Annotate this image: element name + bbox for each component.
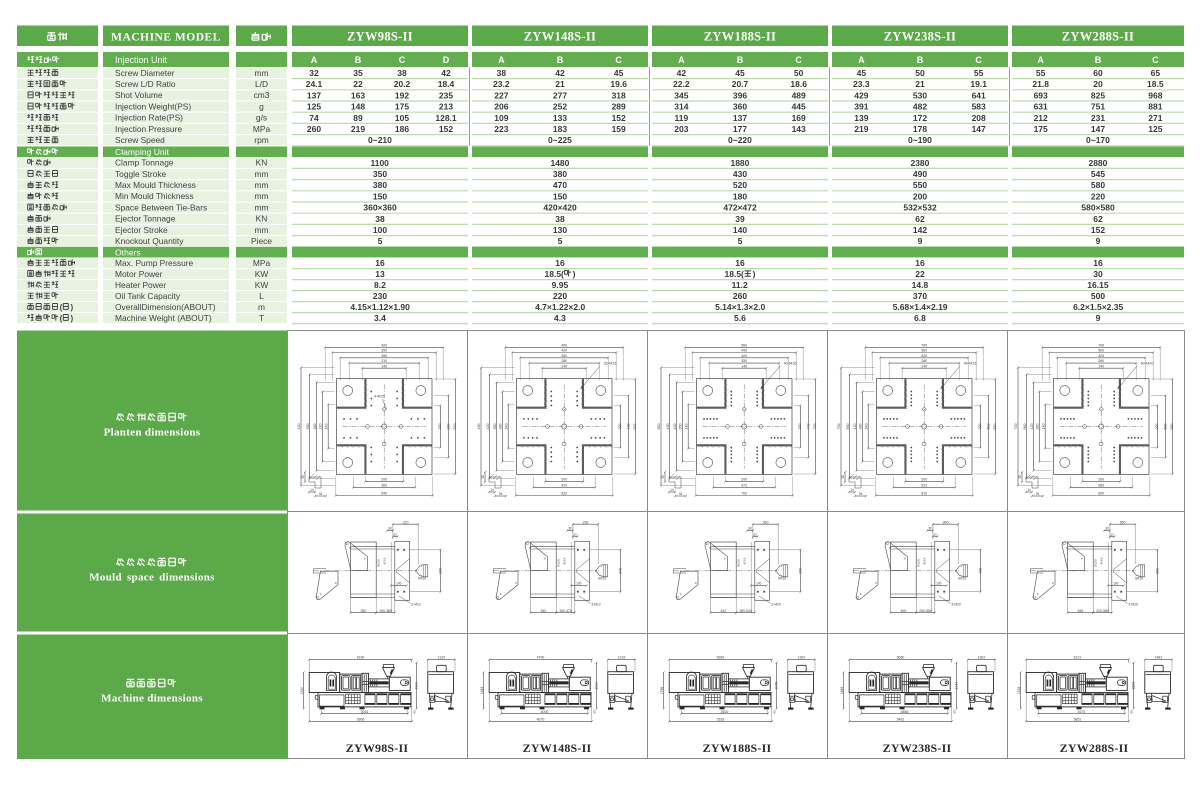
svg-text:490: 490 (666, 424, 670, 430)
svg-text:L: L (259, 291, 264, 301)
svg-text:210: 210 (319, 424, 323, 430)
svg-text:Clamp Tonnage: Clamp Tonnage (115, 158, 174, 168)
svg-text:5179: 5179 (1078, 710, 1086, 714)
svg-text:22: 22 (915, 269, 925, 279)
svg-text:90: 90 (1129, 710, 1133, 714)
svg-text:90: 90 (952, 710, 956, 714)
svg-text:ZYW98S-II: ZYW98S-II (347, 30, 413, 44)
svg-text:B: B (557, 55, 564, 65)
svg-text:18.5(: 18.5( (545, 269, 565, 279)
svg-text:A: A (311, 55, 318, 65)
svg-text:45: 45 (735, 68, 745, 78)
svg-text:16: 16 (375, 258, 385, 268)
svg-text:4000: 4000 (541, 710, 549, 714)
svg-text:0~225: 0~225 (548, 135, 572, 145)
svg-text:C: C (1152, 55, 1159, 65)
svg-text:Ejector Tonnage: Ejector Tonnage (115, 214, 176, 224)
svg-text:420: 420 (853, 424, 857, 430)
svg-text:33: 33 (499, 492, 503, 496)
svg-text:420: 420 (720, 609, 726, 613)
svg-text:420: 420 (673, 424, 677, 430)
svg-text:420: 420 (1030, 424, 1034, 430)
svg-text:490: 490 (913, 169, 927, 179)
svg-text:700: 700 (741, 492, 747, 496)
svg-text:14: 14 (490, 488, 494, 492)
svg-text:119: 119 (674, 113, 688, 123)
svg-text:260: 260 (307, 124, 321, 134)
svg-text:6.8: 6.8 (914, 313, 926, 323)
svg-text:KW: KW (255, 280, 269, 290)
svg-text:(: ( (60, 314, 63, 323)
svg-text:140: 140 (324, 424, 328, 430)
svg-text:18.4: 18.4 (438, 79, 455, 89)
svg-text:45: 45 (857, 68, 867, 78)
svg-text:140: 140 (684, 424, 688, 430)
svg-text:KN: KN (256, 214, 268, 224)
svg-text:200: 200 (1098, 478, 1104, 482)
svg-text:5481: 5481 (897, 717, 905, 721)
svg-text:445: 445 (792, 102, 806, 112)
svg-text:631: 631 (1034, 102, 1048, 112)
svg-text:1480: 1480 (550, 158, 569, 168)
svg-text:30: 30 (1105, 527, 1109, 531)
svg-text:Injection Pressure: Injection Pressure (115, 124, 182, 134)
svg-text:140: 140 (741, 364, 747, 368)
svg-text:Machine Weight (ABOUT): Machine Weight (ABOUT) (115, 313, 212, 323)
svg-text:700: 700 (921, 344, 927, 348)
svg-text:700: 700 (1014, 424, 1018, 430)
svg-text:125: 125 (1148, 124, 1162, 134)
svg-text:178: 178 (913, 124, 927, 134)
svg-text:200: 200 (978, 424, 982, 430)
svg-text:280: 280 (561, 359, 567, 363)
svg-text:4190: 4190 (357, 656, 365, 660)
svg-text:380: 380 (373, 180, 387, 190)
svg-text:rpm: rpm (254, 135, 268, 145)
svg-text:4856: 4856 (901, 710, 909, 714)
svg-text:490: 490 (561, 344, 567, 348)
svg-text:18.5: 18.5 (1147, 79, 1164, 89)
svg-text:A: A (498, 55, 505, 65)
svg-text:Injection Unit: Injection Unit (115, 55, 168, 65)
svg-text:175: 175 (1034, 124, 1048, 134)
svg-text:5: 5 (738, 236, 743, 246)
svg-text:490: 490 (900, 609, 906, 613)
svg-text:420×420: 420×420 (543, 203, 577, 213)
svg-text:89: 89 (353, 113, 363, 123)
svg-text:140: 140 (504, 424, 508, 430)
svg-text:20: 20 (1093, 79, 1103, 89)
svg-text:580×580: 580×580 (1081, 203, 1115, 213)
svg-text:1900: 1900 (414, 682, 418, 690)
svg-text:Min Mould Thickness: Min Mould Thickness (115, 191, 194, 201)
svg-text:21.8: 21.8 (1032, 79, 1049, 89)
svg-text:540: 540 (453, 424, 457, 430)
svg-text:g: g (259, 101, 264, 111)
svg-text:1120: 1120 (438, 656, 446, 660)
svg-text:mm: mm (255, 191, 269, 201)
svg-text:2880: 2880 (1088, 158, 1107, 168)
svg-text:8.2: 8.2 (374, 280, 386, 290)
svg-text:580: 580 (1091, 180, 1105, 190)
svg-text:OverallDimension(ABOUT): OverallDimension(ABOUT) (115, 302, 216, 312)
svg-text:65: 65 (1151, 68, 1161, 78)
svg-text:62: 62 (1093, 214, 1103, 224)
svg-text:641: 641 (972, 90, 986, 100)
svg-text:4520: 4520 (721, 710, 729, 714)
svg-text:420: 420 (626, 424, 630, 430)
svg-text:3.4: 3.4 (374, 313, 386, 323)
svg-text:4-Φ25: 4-Φ25 (374, 395, 385, 399)
svg-text:180-520: 180-520 (739, 609, 752, 613)
svg-text:231: 231 (1091, 113, 1105, 123)
svg-text:530: 530 (913, 90, 927, 100)
svg-text:ZYW188S-II: ZYW188S-II (703, 741, 772, 755)
svg-text:200: 200 (798, 424, 802, 430)
svg-text:Φ3.5: Φ3.5 (1100, 557, 1104, 564)
svg-text:C: C (399, 55, 406, 65)
svg-text:MPa: MPa (253, 124, 271, 134)
svg-text:1216: 1216 (618, 656, 626, 660)
svg-text:SR15: SR15 (1135, 577, 1143, 581)
svg-text:42: 42 (555, 68, 565, 78)
svg-text:19.1: 19.1 (970, 79, 987, 89)
svg-text:500: 500 (1091, 291, 1105, 301)
svg-text:289: 289 (612, 102, 626, 112)
svg-text:206: 206 (494, 102, 508, 112)
svg-text:ZYW288S-II: ZYW288S-II (1062, 30, 1134, 44)
svg-text:Others: Others (115, 247, 141, 257)
svg-text:14: 14 (850, 488, 854, 492)
svg-text:350: 350 (373, 169, 387, 179)
svg-text:mm: mm (255, 68, 269, 78)
svg-text:20: 20 (754, 533, 758, 537)
svg-text:152: 152 (439, 124, 453, 134)
svg-text:5183: 5183 (717, 717, 725, 721)
svg-text:220: 220 (1091, 191, 1105, 201)
svg-text:Φ125: Φ125 (1094, 559, 1098, 567)
svg-text:50: 50 (915, 68, 925, 78)
svg-text:5: 5 (558, 236, 563, 246)
svg-text:Max Mould Thickness: Max Mould Thickness (115, 180, 196, 190)
svg-text:159: 159 (612, 124, 626, 134)
svg-text:1443: 1443 (480, 687, 484, 695)
svg-text:): ) (70, 314, 73, 323)
svg-text:420: 420 (741, 354, 747, 358)
svg-text:150: 150 (553, 191, 567, 201)
svg-text:360: 360 (381, 484, 387, 488)
svg-text:B: B (1095, 55, 1102, 65)
svg-text:200: 200 (913, 191, 927, 201)
svg-text:130: 130 (553, 225, 567, 235)
svg-text:Φ125: Φ125 (557, 559, 561, 567)
svg-text:380: 380 (553, 169, 567, 179)
svg-text:200-550: 200-550 (919, 609, 932, 613)
svg-text:230: 230 (373, 291, 387, 301)
svg-text:350: 350 (741, 359, 747, 363)
svg-text:1918: 1918 (1017, 687, 1021, 695)
svg-text:16: 16 (555, 258, 565, 268)
svg-text:0~210: 0~210 (368, 135, 392, 145)
svg-text:42: 42 (677, 68, 687, 78)
svg-text:489: 489 (792, 90, 806, 100)
svg-text:90: 90 (592, 710, 596, 714)
svg-text:532: 532 (986, 424, 990, 430)
svg-text:314: 314 (674, 102, 688, 112)
svg-text:38: 38 (555, 214, 565, 224)
svg-text:2141: 2141 (954, 682, 958, 690)
svg-text:545: 545 (1091, 169, 1105, 179)
svg-text:532×532: 532×532 (903, 203, 937, 213)
svg-text:100: 100 (936, 582, 942, 586)
svg-text:210: 210 (381, 359, 387, 363)
svg-text:50: 50 (794, 68, 804, 78)
svg-text:): ) (753, 269, 756, 279)
svg-text:SR15: SR15 (778, 577, 786, 581)
svg-text:30: 30 (928, 527, 932, 531)
svg-text:20.7: 20.7 (732, 79, 749, 89)
svg-text:MACHINE MODEL: MACHINE MODEL (111, 31, 221, 43)
svg-text:Knockout Quantity: Knockout Quantity (115, 236, 184, 246)
svg-text:30: 30 (748, 527, 752, 531)
svg-text:Φ3.5: Φ3.5 (383, 557, 387, 564)
svg-text:Toggle Stroke: Toggle Stroke (115, 169, 167, 179)
svg-text:150: 150 (373, 191, 387, 201)
svg-text:140: 140 (921, 364, 927, 368)
svg-text:219: 219 (351, 124, 365, 134)
svg-text:39: 39 (735, 214, 745, 224)
svg-text:Screw Speed: Screw Speed (115, 135, 165, 145)
svg-text:5680: 5680 (897, 656, 905, 660)
svg-text:3016: 3016 (361, 710, 369, 714)
svg-text:A: A (678, 55, 685, 65)
svg-text:280: 280 (859, 424, 863, 430)
svg-text:D: D (443, 55, 450, 65)
svg-text:SR15: SR15 (598, 577, 606, 581)
svg-text:21: 21 (555, 79, 565, 89)
svg-text:Φ125: Φ125 (377, 559, 381, 567)
svg-text:3-M12: 3-M12 (591, 603, 601, 607)
svg-text:2075: 2075 (774, 682, 778, 690)
svg-text:420: 420 (978, 568, 982, 574)
svg-text:109: 109 (494, 113, 508, 123)
svg-text:Injection Rate(PS): Injection Rate(PS) (115, 113, 183, 123)
svg-text:13: 13 (375, 269, 385, 279)
svg-text:1880: 1880 (730, 158, 749, 168)
svg-text:420: 420 (561, 484, 567, 488)
svg-text:580: 580 (1098, 484, 1104, 488)
svg-text:350: 350 (493, 424, 497, 430)
svg-text:ZYW238S-II: ZYW238S-II (884, 30, 956, 44)
svg-text:9.95: 9.95 (552, 280, 569, 290)
svg-text:810: 810 (921, 492, 927, 496)
svg-text:B: B (917, 55, 924, 65)
svg-text:396: 396 (733, 90, 747, 100)
svg-text:9: 9 (918, 236, 923, 246)
svg-text:30: 30 (841, 475, 845, 479)
svg-text:32-M16: 32-M16 (604, 362, 617, 366)
svg-text:30: 30 (388, 527, 392, 531)
svg-text:271: 271 (1148, 113, 1162, 123)
svg-text:252: 252 (553, 102, 567, 112)
svg-text:850: 850 (1098, 492, 1104, 496)
svg-text:5: 5 (378, 236, 383, 246)
svg-text:532: 532 (921, 484, 927, 488)
svg-text:1449: 1449 (840, 687, 844, 695)
svg-text:ZYW148S-II: ZYW148S-II (523, 741, 592, 755)
svg-text:Screw L/D Ratio: Screw L/D Ratio (115, 79, 176, 89)
svg-text:Φ3.5: Φ3.5 (923, 557, 927, 564)
svg-text:3-M20: 3-M20 (951, 603, 961, 607)
svg-text:150-470: 150-470 (559, 609, 572, 613)
svg-text:g/s: g/s (256, 113, 267, 123)
svg-text:192: 192 (395, 90, 409, 100)
svg-text:4.15×1.12×1.90: 4.15×1.12×1.90 (350, 302, 410, 312)
svg-text:177: 177 (733, 124, 747, 134)
svg-text:18.6: 18.6 (790, 79, 807, 89)
svg-text:810: 810 (993, 424, 997, 430)
svg-text:16: 16 (735, 258, 745, 268)
svg-text:40-M16: 40-M16 (784, 362, 797, 366)
svg-text:B: B (737, 55, 744, 65)
svg-text:16: 16 (1093, 258, 1103, 268)
svg-text:Mould space dimensions: Mould space dimensions (89, 572, 215, 584)
svg-text:4790: 4790 (537, 656, 545, 660)
svg-text:140: 140 (864, 424, 868, 430)
svg-text:60: 60 (1093, 68, 1103, 78)
svg-text:540: 540 (381, 492, 387, 496)
svg-text:350: 350 (381, 349, 387, 353)
svg-text:0~220: 0~220 (728, 135, 752, 145)
svg-text:290: 290 (798, 568, 802, 574)
svg-text:430: 430 (733, 169, 747, 179)
svg-text:1302: 1302 (978, 656, 986, 660)
svg-text:Motor Power: Motor Power (115, 269, 163, 279)
svg-text:200: 200 (438, 568, 442, 574)
svg-text:Φ3.5: Φ3.5 (563, 557, 567, 564)
svg-text:345: 345 (674, 90, 688, 100)
svg-text:T: T (259, 313, 264, 323)
svg-text:203: 203 (674, 124, 688, 134)
svg-text:5851: 5851 (1074, 717, 1082, 721)
svg-text:20: 20 (1111, 533, 1115, 537)
svg-text:C: C (795, 55, 802, 65)
svg-text:0~190: 0~190 (908, 135, 932, 145)
svg-text:472: 472 (806, 424, 810, 430)
svg-text:560: 560 (741, 344, 747, 348)
svg-text:140: 140 (1041, 424, 1045, 430)
svg-text:280: 280 (499, 424, 503, 430)
svg-text:22.2: 22.2 (673, 79, 690, 89)
svg-text:Heater Power: Heater Power (115, 280, 166, 290)
svg-text:): ) (70, 303, 73, 312)
svg-text:4670: 4670 (537, 717, 545, 721)
svg-text:33: 33 (319, 492, 323, 496)
svg-text:Planten dimensions: Planten dimensions (104, 427, 201, 439)
svg-text:Screw Diameter: Screw Diameter (115, 68, 175, 78)
svg-text:350: 350 (679, 424, 683, 430)
svg-text:350: 350 (1120, 520, 1126, 524)
svg-text:ZYW188S-II: ZYW188S-II (704, 30, 776, 44)
svg-text:32: 32 (309, 68, 319, 78)
svg-text:90: 90 (412, 710, 416, 714)
svg-text:200: 200 (381, 478, 387, 482)
svg-text:ZYW238S-II: ZYW238S-II (883, 741, 952, 755)
svg-text:318: 318 (612, 90, 626, 100)
svg-text:420: 420 (297, 424, 301, 430)
svg-text:5.6: 5.6 (734, 313, 746, 323)
svg-text:0~170: 0~170 (1086, 135, 1110, 145)
svg-text:23.2: 23.2 (493, 79, 510, 89)
svg-text:20.2: 20.2 (394, 79, 411, 89)
svg-text:751: 751 (1091, 102, 1105, 112)
svg-text:391: 391 (854, 102, 868, 112)
svg-text:650: 650 (1155, 568, 1159, 574)
svg-text:100: 100 (396, 582, 402, 586)
svg-text:2380: 2380 (910, 158, 929, 168)
svg-text:100: 100 (373, 225, 387, 235)
svg-text:2010: 2010 (594, 682, 598, 690)
svg-text:300: 300 (943, 520, 949, 524)
svg-text:583: 583 (972, 102, 986, 112)
svg-text:140: 140 (1098, 364, 1104, 368)
svg-text:200: 200 (921, 478, 927, 482)
svg-text:A: A (858, 55, 865, 65)
svg-text:20: 20 (394, 533, 398, 537)
svg-text:Space Between Tie-Bars: Space Between Tie-Bars (115, 202, 207, 212)
svg-text:550: 550 (913, 180, 927, 190)
svg-text:560: 560 (921, 349, 927, 353)
svg-text:632: 632 (633, 424, 637, 430)
svg-text:19.6: 19.6 (610, 79, 627, 89)
svg-text:100: 100 (756, 582, 762, 586)
svg-text:B: B (355, 55, 362, 65)
svg-text:133: 133 (553, 113, 567, 123)
svg-text:60-M20: 60-M20 (1141, 362, 1154, 366)
svg-text:5.14×1.3×2.0: 5.14×1.3×2.0 (715, 302, 765, 312)
svg-text:180: 180 (733, 191, 747, 201)
svg-text:280: 280 (921, 359, 927, 363)
svg-text:420: 420 (486, 424, 490, 430)
svg-text:200: 200 (561, 478, 567, 482)
svg-text:90: 90 (772, 710, 776, 714)
svg-text:360: 360 (446, 424, 450, 430)
svg-text:360: 360 (733, 102, 747, 112)
svg-text:260: 260 (733, 291, 747, 301)
svg-text:482: 482 (913, 102, 927, 112)
svg-text:33: 33 (679, 492, 683, 496)
svg-text:14.8: 14.8 (912, 280, 929, 290)
svg-text:147: 147 (1091, 124, 1105, 134)
svg-text:360×360: 360×360 (363, 203, 397, 213)
svg-text:340: 340 (540, 609, 546, 613)
svg-text:Φ125: Φ125 (917, 559, 921, 567)
svg-text:200: 200 (741, 478, 747, 482)
svg-text:143: 143 (792, 124, 806, 134)
svg-text:429: 429 (854, 90, 868, 100)
svg-text:227: 227 (494, 90, 508, 100)
svg-text:150-380: 150-380 (379, 609, 392, 613)
svg-text:(: ( (60, 303, 63, 312)
svg-text:1302: 1302 (798, 656, 806, 660)
svg-text:968: 968 (1148, 90, 1162, 100)
svg-text:277: 277 (553, 90, 567, 100)
svg-text:105: 105 (395, 113, 409, 123)
svg-text:200: 200 (438, 424, 442, 430)
svg-text:30: 30 (661, 475, 665, 479)
svg-text:Oil Tank Capacity: Oil Tank Capacity (115, 291, 181, 301)
svg-text:22: 22 (353, 79, 363, 89)
